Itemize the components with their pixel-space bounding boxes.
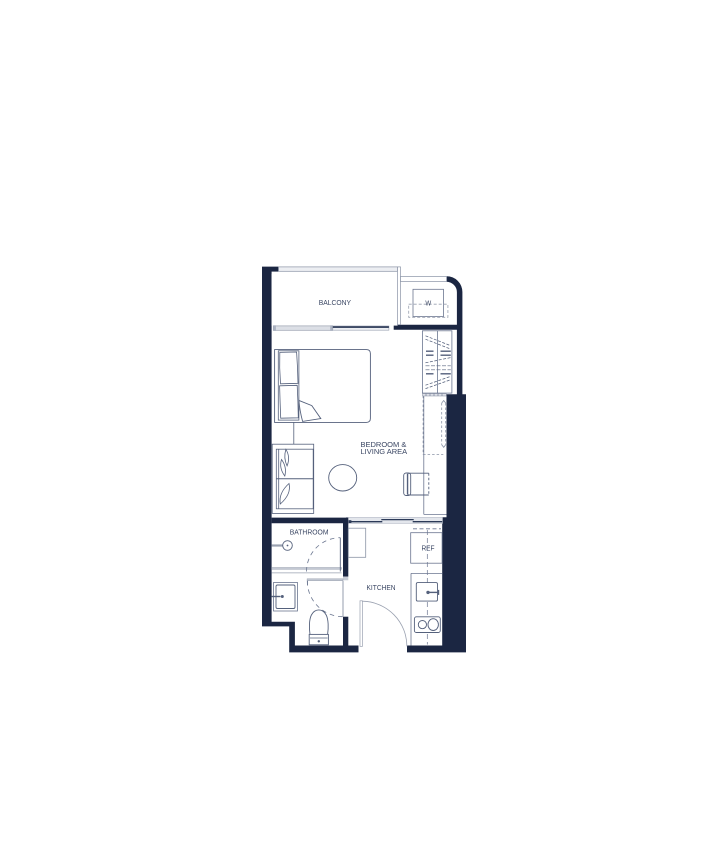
svg-text:KITCHEN: KITCHEN <box>367 583 396 592</box>
svg-text:BATHROOM: BATHROOM <box>290 527 329 536</box>
svg-text:BALCONY: BALCONY <box>319 298 351 307</box>
svg-text:W: W <box>425 298 432 307</box>
svg-text:LIVING AREA: LIVING AREA <box>361 447 408 456</box>
svg-text:REF: REF <box>421 543 434 552</box>
